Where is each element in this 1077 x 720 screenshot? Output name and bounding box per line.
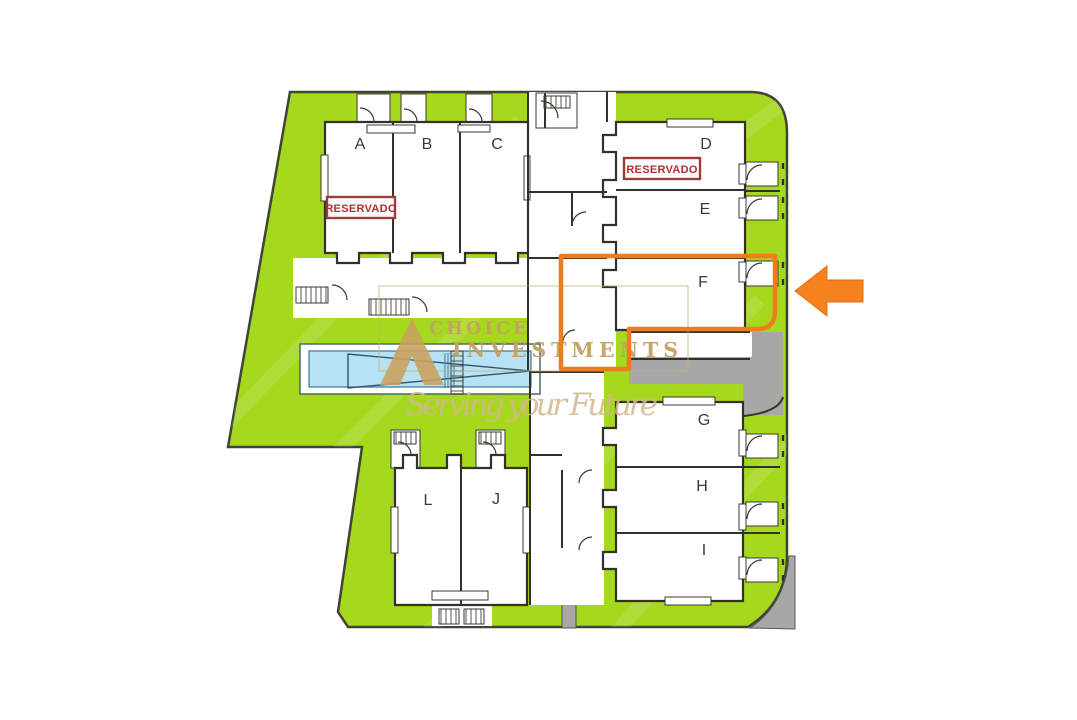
unit-label-f: F bbox=[698, 274, 708, 291]
reservado-stamp-a: RESERVADO bbox=[325, 197, 397, 218]
window bbox=[739, 262, 746, 282]
window bbox=[367, 125, 415, 133]
stairs-icon bbox=[464, 609, 484, 624]
unit-label-a: A bbox=[355, 136, 366, 153]
watermark-tagline: Serving your Future bbox=[405, 387, 660, 423]
window bbox=[739, 164, 746, 184]
stamp-text: RESERVADO bbox=[325, 203, 397, 215]
watermark-brand-investments: INVESTMENTS bbox=[452, 338, 684, 362]
building-lj bbox=[391, 455, 530, 605]
unit-label-g: G bbox=[698, 412, 710, 429]
porch-b bbox=[401, 94, 426, 122]
porch-c bbox=[466, 94, 492, 122]
floor-plan-image: A B C D E F G H I L J RESERVADO RESERVAD… bbox=[0, 0, 1077, 720]
unit-label-l: L bbox=[424, 492, 433, 509]
stairs-icon bbox=[369, 299, 409, 315]
window bbox=[739, 557, 746, 579]
unit-label-e: E bbox=[700, 201, 711, 218]
window bbox=[739, 504, 746, 530]
building-def-outline bbox=[603, 122, 745, 330]
watermark-brand-choice: CHOICE bbox=[429, 319, 531, 339]
building-ghi bbox=[603, 397, 746, 605]
window bbox=[391, 507, 398, 553]
stairs-icon bbox=[439, 609, 459, 624]
window bbox=[432, 591, 488, 600]
window bbox=[667, 119, 713, 127]
window bbox=[458, 125, 490, 132]
stamp-text: RESERVADO bbox=[626, 164, 698, 176]
building-def bbox=[603, 119, 746, 330]
unit-label-c: C bbox=[491, 136, 503, 153]
window bbox=[663, 397, 715, 405]
reservado-stamp-d: RESERVADO bbox=[624, 158, 700, 179]
stairs-icon bbox=[479, 432, 501, 444]
stairs-icon bbox=[296, 287, 328, 303]
window bbox=[739, 198, 746, 218]
entry-path-i bbox=[746, 558, 778, 582]
window bbox=[321, 155, 328, 201]
unit-label-j: J bbox=[492, 491, 500, 508]
window bbox=[523, 507, 530, 553]
unit-label-b: B bbox=[422, 136, 433, 153]
orange-arrow-icon bbox=[795, 266, 863, 316]
building-ghi-outline bbox=[603, 402, 743, 601]
unit-label-d: D bbox=[700, 136, 712, 153]
unit-label-i: I bbox=[702, 542, 706, 559]
entry-path-g bbox=[746, 434, 778, 458]
window bbox=[739, 430, 746, 456]
entry-path-h bbox=[746, 502, 778, 526]
window bbox=[665, 597, 711, 605]
driveway-gray-3 bbox=[743, 384, 783, 415]
unit-label-h: H bbox=[696, 478, 708, 495]
stairs-icon bbox=[394, 432, 416, 444]
